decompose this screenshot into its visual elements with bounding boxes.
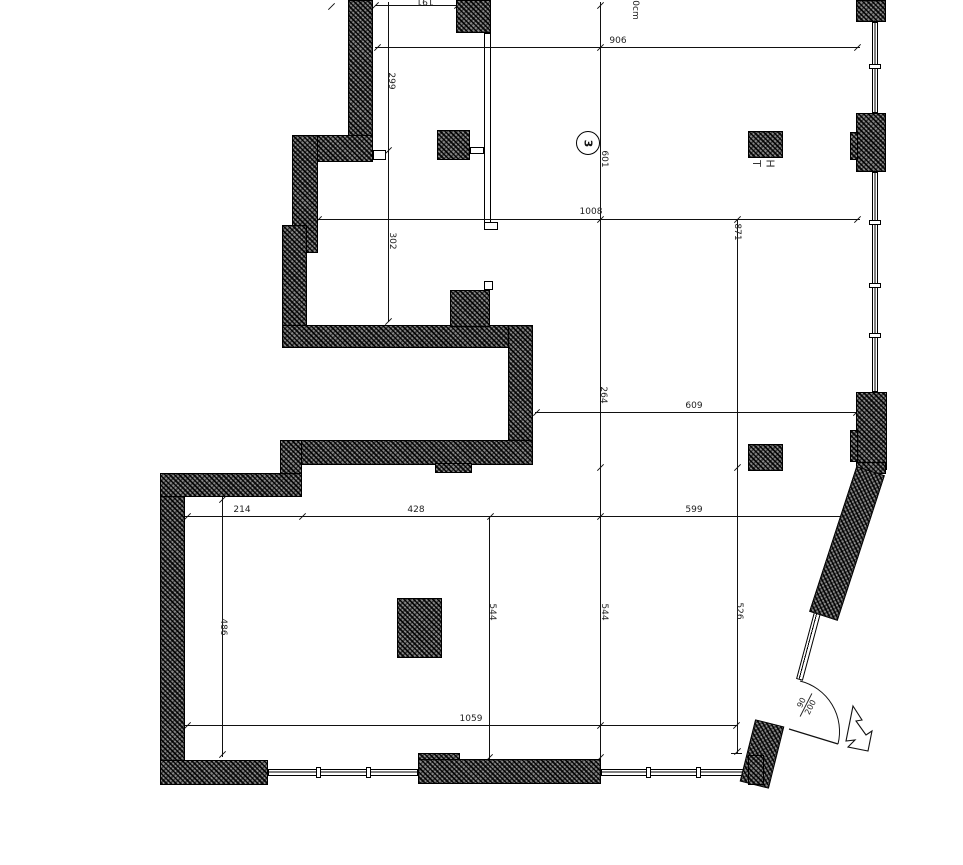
- floorplan-canvas: 191 906 1008 609 214 428 599 1059 299 30…: [0, 0, 963, 865]
- dim-label-871: 871: [732, 223, 742, 240]
- column-tag-letter-h: H: [763, 159, 776, 173]
- dim-label-299: 299: [386, 72, 396, 89]
- dim-label-544-a: 544: [487, 603, 497, 620]
- dim-label-486: 486: [218, 618, 228, 635]
- dim-label-601: 601: [599, 150, 609, 167]
- axis-marker-3: 3: [576, 131, 600, 155]
- dim-label-906: 906: [609, 36, 626, 46]
- dim-label-609: 609: [685, 401, 702, 411]
- dim-label-544-b: 544: [599, 603, 609, 620]
- dim-label-599: 599: [685, 505, 702, 515]
- column-tag-ht: TH: [750, 160, 777, 173]
- door-leaf: [789, 729, 838, 744]
- column-tag-letter-t: T: [750, 160, 763, 173]
- dim-label-1008: 1008: [580, 207, 603, 217]
- exit-arrow-icon: [846, 706, 872, 751]
- axis-marker-number: 3: [582, 139, 595, 147]
- dim-label-428: 428: [407, 505, 424, 515]
- dim-label-214: 214: [233, 505, 250, 515]
- door-swing-overlay: [0, 0, 963, 865]
- dim-label-264: 264: [598, 386, 608, 403]
- note-0cm: 0cm: [630, 0, 640, 19]
- dim-label-302: 302: [387, 232, 397, 249]
- dim-label-1059: 1059: [460, 714, 483, 724]
- dim-label-526: 526: [734, 602, 744, 619]
- dim-label-191: 191: [416, 0, 433, 6]
